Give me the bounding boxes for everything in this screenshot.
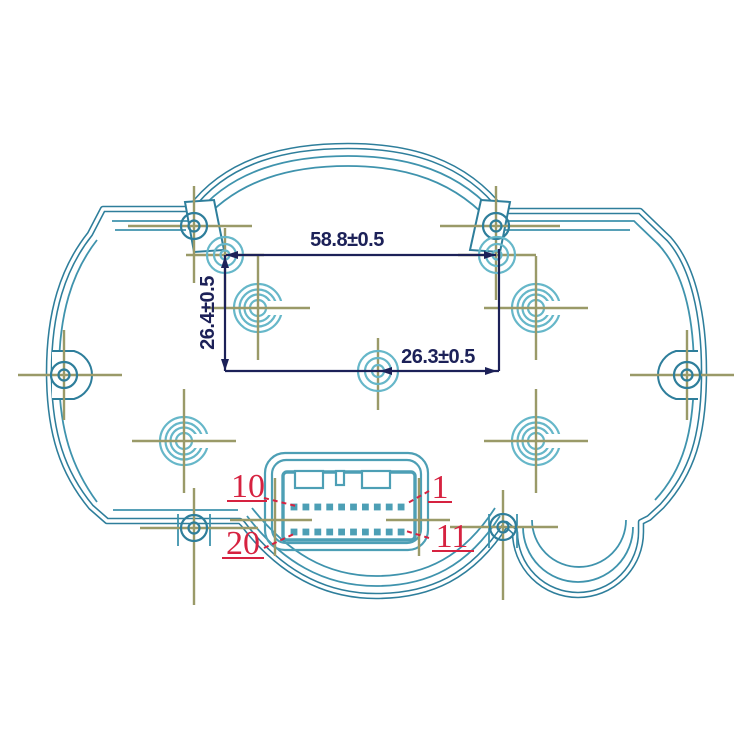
dimension-height-value: 26.4±0.5 [197,276,219,350]
connector-pin [303,529,310,536]
top-right-flat-inner-line [503,221,660,246]
screw-boss-lower-right [484,389,588,493]
screw-boss-lower-left [132,389,236,493]
connector-pin [374,529,381,536]
gauge-housing-rear-drawing: 58.8±0.5 26.4±0.5 26.3±0.5 10 1 [0,0,750,750]
pin-row-top [291,504,405,511]
dimension-width-value: 58.8±0.5 [310,229,384,251]
connector-key-center [336,471,344,485]
connector-pin [386,529,393,536]
mounting-ear-left [18,330,122,420]
connector-pin [374,504,381,511]
connector-pin [314,504,321,511]
arrowhead-right [485,367,497,375]
connector-key-left [295,471,323,488]
leader-line [264,498,296,506]
top-arc-inner-line-2 [199,166,495,227]
connector-pin [398,529,405,536]
dimension-offset-value: 26.3±0.5 [401,346,475,368]
connector-key-right [362,471,390,488]
connector-pin [338,529,345,536]
connector-pin [350,504,357,511]
connector-pin [326,529,333,536]
arrowhead-left [380,367,392,375]
connector-pin [350,529,357,536]
mounting-tab-top-left [128,186,252,283]
dimension-width: 58.8±0.5 [226,229,496,259]
mounting-ear-right [630,330,734,420]
arrowhead-bottom [221,359,229,371]
connector-pin [338,504,345,511]
dimension-height: 26.4±0.5 [197,255,229,371]
pin-row-bottom [291,529,405,536]
connector-pin [362,504,369,511]
pin-number-1: 1 [432,469,449,506]
pin-number-20: 20 [226,525,260,562]
connector-pin [362,529,369,536]
pin-number-11: 11 [436,518,469,555]
connector-pin [314,529,321,536]
technical-drawing-canvas: 58.8±0.5 26.4±0.5 26.3±0.5 10 1 [0,0,750,750]
connector-pin [303,504,310,511]
pin-number-10: 10 [231,468,265,505]
connector-pin [386,504,393,511]
leader-line [406,491,429,504]
connector-pin [398,504,405,511]
connector-pin [326,504,333,511]
u-notch-inner-arc-1 [523,527,633,582]
